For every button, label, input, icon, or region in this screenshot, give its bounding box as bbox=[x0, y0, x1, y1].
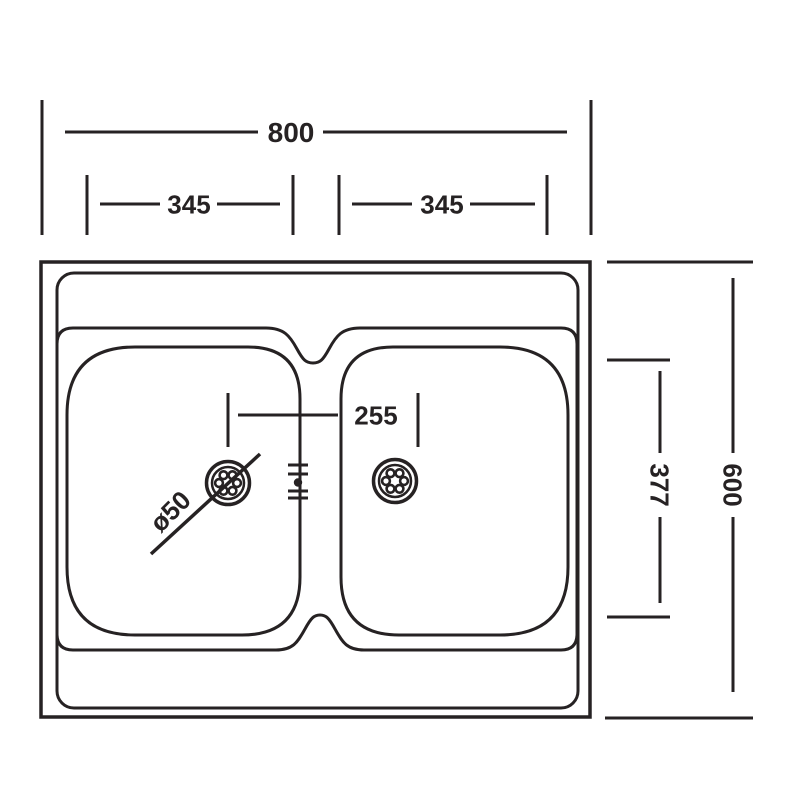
right-dimensions: 600 377 bbox=[605, 262, 753, 718]
dim-left-bowl-width: 345 bbox=[87, 175, 293, 235]
sink-inner-rim bbox=[57, 273, 578, 708]
drain-hole bbox=[396, 485, 404, 493]
drain-hole bbox=[233, 479, 241, 487]
sink-dimension-drawing: 800 345 345 bbox=[0, 0, 800, 800]
dim-drain-spacing: 255 bbox=[228, 393, 418, 447]
overall-width-label: 800 bbox=[268, 117, 315, 148]
sink-plan-view: 255 ø50 bbox=[41, 262, 590, 717]
top-dimensions: 800 345 345 bbox=[42, 100, 591, 235]
drain-diameter-label: ø50 bbox=[144, 485, 197, 538]
right-bowl-width-label: 345 bbox=[420, 189, 463, 219]
drain-hole bbox=[400, 477, 408, 485]
dim-right-bowl-width: 345 bbox=[339, 175, 547, 235]
drain-hole bbox=[387, 485, 395, 493]
pressed-contour bbox=[57, 328, 577, 650]
reference-dot bbox=[294, 478, 302, 486]
dim-bowl-depth: 377 bbox=[607, 360, 675, 617]
dim-drain-diameter: ø50 bbox=[144, 454, 260, 554]
drain-hole bbox=[215, 479, 223, 487]
left-bowl bbox=[67, 347, 300, 635]
dim-overall-depth: 600 bbox=[605, 262, 753, 718]
drain-right bbox=[374, 460, 417, 503]
left-bowl-width-label: 345 bbox=[167, 189, 210, 219]
drain-hole bbox=[387, 469, 395, 477]
dim-overall-width: 800 bbox=[42, 100, 591, 235]
bowl-depth-label: 377 bbox=[645, 463, 675, 506]
center-reference-marks bbox=[288, 465, 308, 498]
drain-inner-ring bbox=[379, 465, 411, 497]
drain-hole bbox=[220, 471, 228, 479]
drain-hole bbox=[229, 487, 237, 495]
drawing-svg: 800 345 345 bbox=[0, 0, 800, 800]
drain-spacing-label: 255 bbox=[354, 400, 397, 430]
drain-hole bbox=[382, 477, 390, 485]
drain-hole bbox=[396, 469, 404, 477]
overall-depth-label: 600 bbox=[718, 463, 748, 506]
